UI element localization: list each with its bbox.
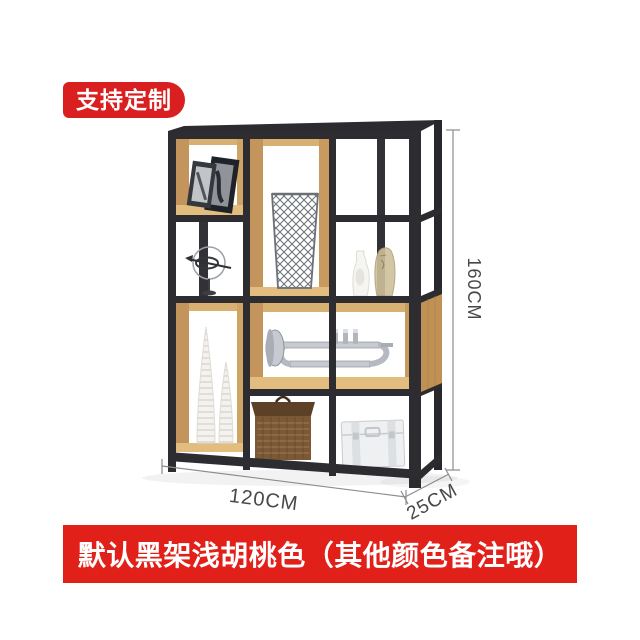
picture-frames	[186, 154, 239, 214]
height-dimension-label: 160CM	[464, 257, 484, 320]
white-vase	[353, 251, 369, 296]
glass-head-sculpture	[375, 248, 395, 296]
white-trunk	[341, 420, 405, 468]
wicker-basket	[251, 397, 315, 460]
wire-basket	[272, 194, 318, 288]
width-dimension-label: 120CM	[228, 485, 300, 515]
product-image: 支持定制	[0, 0, 640, 640]
color-note-banner: 默认黑架浅胡桃色（其他颜色备注哦）	[63, 525, 577, 583]
